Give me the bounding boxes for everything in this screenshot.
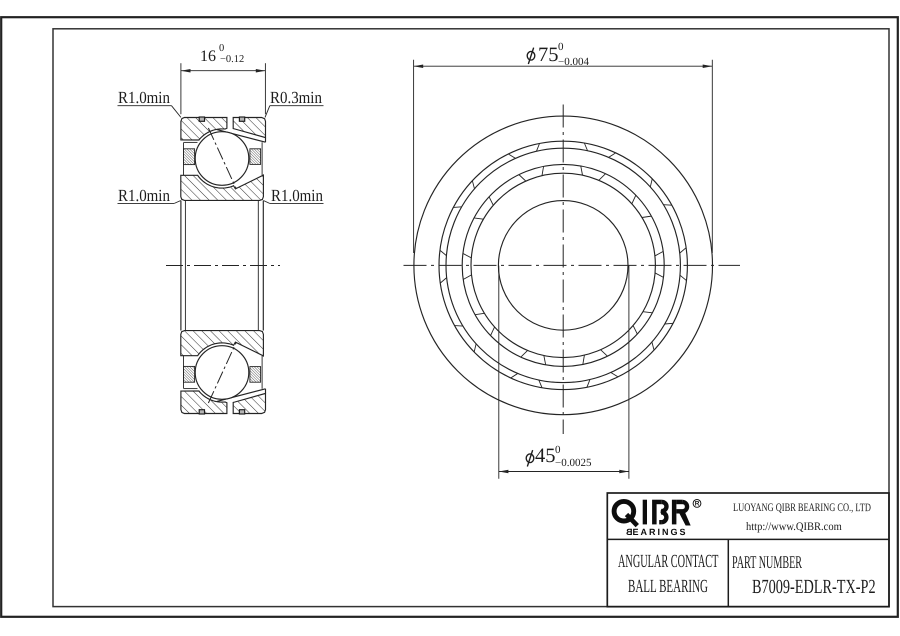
svg-text:R: R	[695, 501, 700, 508]
